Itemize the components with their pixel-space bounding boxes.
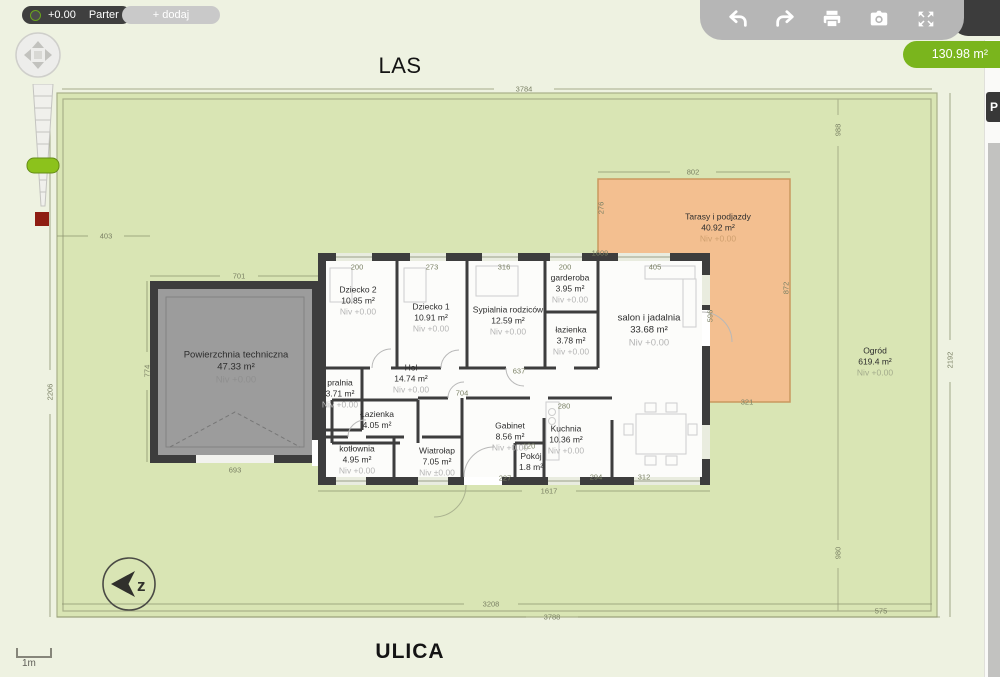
undo-button[interactable] [726,8,750,32]
dimension-label: 405 [649,263,662,272]
room-niv: Niv +0.00 [184,374,289,386]
room-niv: Niv +0.00 [548,446,584,457]
redo-icon [774,8,796,30]
room-name: Pokój [519,451,543,462]
room-label[interactable]: salon i jadalnia33.68 m²Niv +0.00 [618,312,681,349]
dimension-label: 321 [741,398,754,407]
room-name: salon i jadalnia [618,312,681,324]
dimension-label: 802 [687,168,700,177]
room-label[interactable]: Powierzchnia techniczna47.33 m²Niv +0.00 [184,349,289,386]
dimension-label: 312 [638,473,651,482]
scale-label: 1m [22,658,36,669]
room-label[interactable]: Dziecko 210.85 m²Niv +0.00 [339,284,376,317]
room-niv: Niv +0.00 [473,327,543,338]
room-name: Gabinet [492,420,528,431]
room-label[interactable]: Wiatrołap7.05 m²Niv ±0.00 [419,445,455,478]
room-label[interactable]: łazienka3.78 m²Niv +0.00 [553,324,589,357]
dimension-label: 872 [782,282,791,295]
room-area: 619.4 m² [857,356,893,367]
room-niv: Niv +0.00 [618,337,681,349]
room-niv: Niv +0.00 [412,324,449,335]
room-area: 7.05 m² [419,456,455,467]
compass-control[interactable]: z [100,555,158,613]
room-name: Hol [393,362,429,373]
room-area: 10.91 m² [412,312,449,323]
dimension-label: 3788 [544,613,561,622]
room-label[interactable]: Gabinet8.56 m²Niv +0.00 [492,420,528,453]
room-label[interactable]: Hol14.74 m²Niv +0.00 [393,362,429,395]
room-area: 14.74 m² [393,373,429,384]
dimension-label: 273 [426,263,439,272]
room-area: 4.95 m² [339,454,375,465]
room-area: 8.56 m² [492,431,528,442]
dimension-label: 701 [233,272,246,281]
room-area: 1.8 m² [519,462,543,473]
room-area: 10.36 m² [548,434,584,445]
zoom-slider[interactable] [26,84,60,230]
dimension-label: 596 [706,310,715,323]
dimension-label: 3784 [516,85,533,94]
room-niv: Niv +0.00 [339,466,375,477]
compass-letter: z [137,576,146,595]
room-name: Tarasy i podjazdy [685,211,751,222]
room-niv: Niv +0.00 [685,234,751,245]
dimension-label: 575 [875,607,888,616]
room-area: 10.85 m² [339,295,376,306]
room-area: 12.59 m² [473,315,543,326]
dimension-label: 276 [597,202,606,215]
dimension-label: 200 [559,263,572,272]
north-arrow-icon [111,571,135,597]
dimension-label: 316 [498,263,511,272]
dimension-label: 403 [100,232,113,241]
pan-control[interactable] [15,32,61,78]
room-label[interactable]: Sypialnia rodziców12.59 m²Niv +0.00 [473,304,543,337]
room-label[interactable]: Kuchnia10.36 m²Niv +0.00 [548,423,584,456]
dimension-label: 280 [558,402,571,411]
room-niv: Niv +0.00 [551,295,590,306]
planner-app: Powierzchnia techniczna47.33 m²Niv +0.00… [0,0,1000,677]
room-area: 3.78 m² [553,335,589,346]
dimension-label: 2192 [946,352,955,369]
room-area: 3.71 m² [322,388,358,399]
room-niv: Niv +0.00 [553,347,589,358]
room-name: Dziecko 2 [339,284,376,295]
red-marker[interactable] [35,212,49,226]
room-name: Kuchnia [548,423,584,434]
dimension-label: 200 [351,263,364,272]
room-area: 47.33 m² [184,362,289,374]
room-name: pralnia [322,377,358,388]
add-level-button[interactable]: + dodaj [122,6,220,24]
dimension-label: 693 [229,466,242,475]
room-niv: Niv +0.00 [393,385,429,396]
room-niv: Niv +0.00 [857,368,893,379]
print-icon [821,8,843,30]
room-niv: Niv ±0.00 [419,468,455,479]
room-area: 40.92 m² [685,222,751,233]
room-name: Dziecko 1 [412,301,449,312]
room-name: Łazienka [360,409,394,420]
dimension-label: 774 [143,365,152,378]
room-name: Powierzchnia techniczna [184,349,289,361]
room-name: Sypialnia rodziców [473,304,543,315]
room-name: Wiatrołap [419,445,455,456]
right-panel-gray [988,143,1000,677]
scale-bar [16,648,52,658]
room-niv: Niv +0.00 [322,400,358,411]
room-label[interactable]: pralnia3.71 m²Niv +0.00 [322,377,358,410]
room-label[interactable]: Tarasy i podjazdy40.92 m²Niv +0.00 [685,211,751,244]
level-name: Parter [89,9,119,21]
street-label: ULICA [375,640,444,664]
undo-icon [727,8,749,30]
dimension-label: 3208 [483,600,500,609]
room-label[interactable]: kotłownia4.95 m²Niv +0.00 [339,443,375,476]
room-label[interactable]: Ogród619.4 m²Niv +0.00 [857,345,893,378]
room-area: 33.68 m² [618,325,681,337]
room-name: Ogród [857,345,893,356]
panel-tab[interactable]: P [986,92,1000,122]
dimension-label: 1609 [592,249,609,258]
fullscreen-icon [915,8,937,30]
level-value: +0.00 [48,9,76,21]
level-icon [30,10,41,21]
dimension-label: 294 [590,473,603,482]
snapshot-button[interactable] [867,8,891,32]
dimension-label: 2206 [46,384,55,401]
forest-label: LAS [378,53,421,79]
dimension-label: 637 [513,367,526,376]
room-niv: Niv +0.00 [339,307,376,318]
dimension-label: 980 [834,547,843,560]
room-label[interactable]: Pokój1.8 m² [519,451,543,473]
room-area: 3.95 m² [551,283,590,294]
total-area-badge: 130.98 m² [903,41,1000,68]
print-button[interactable] [820,8,844,32]
dimension-label: 704 [456,389,469,398]
room-name: garderoba [551,272,590,283]
dimension-label: 988 [834,124,843,137]
camera-icon [868,8,890,30]
room-area: 4.05 m² [360,420,394,431]
dimension-label: 1617 [541,487,558,496]
room-label[interactable]: Łazienka4.05 m² [360,409,394,431]
fullscreen-button[interactable] [914,8,938,32]
zoom-handle[interactable] [27,158,59,173]
level-button[interactable]: +0.00 Parter [22,6,131,24]
redo-button[interactable] [773,8,797,32]
room-name: łazienka [553,324,589,335]
zoom-track[interactable] [33,84,53,206]
room-label[interactable]: Dziecko 110.91 m²Niv +0.00 [412,301,449,334]
room-label[interactable]: garderoba3.95 m²Niv +0.00 [551,272,590,305]
top-toolbar [700,0,964,40]
room-name: kotłownia [339,443,375,454]
dimension-label: 227 [499,474,512,483]
